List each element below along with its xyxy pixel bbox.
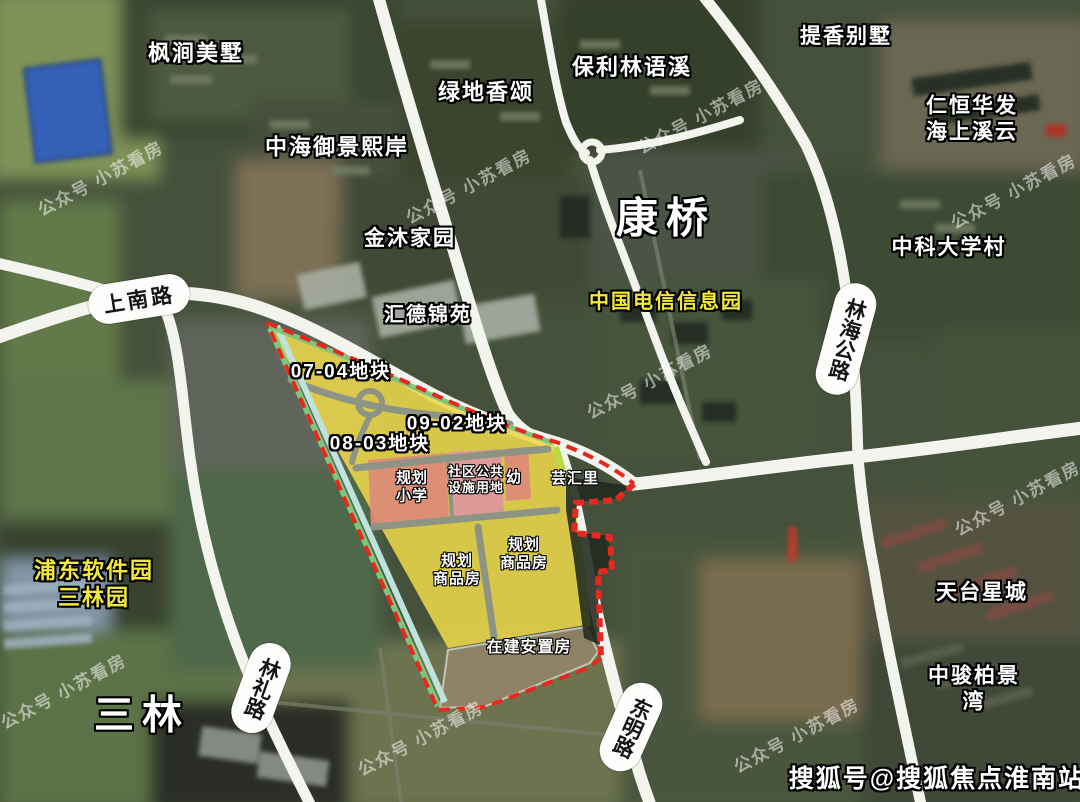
label-plot-07-04: 07-04地块 <box>291 360 392 383</box>
label-huide: 汇德锦苑 <box>384 303 472 327</box>
label-baoli: 保利林语溪 <box>572 55 692 82</box>
label-jinmu: 金沐家园 <box>364 226 456 252</box>
label-commodity-housing-west: 规划 商品房 <box>433 553 481 590</box>
label-district-sanlin: 三林 <box>94 692 190 741</box>
label-zhongjun: 中骏柏景湾 <box>921 663 1027 714</box>
label-plot-08-03: 08-03地块 <box>330 432 431 455</box>
label-community-facility: 社区公共 设施用地 <box>448 464 504 496</box>
label-fengjian-villa: 枫涧美墅 <box>148 41 244 68</box>
source-credit: 搜狐号@搜狐焦点淮南站 <box>789 759 1080 795</box>
map-canvas <box>0 0 1080 802</box>
label-telecom-park: 中国电信信息园 <box>589 290 743 314</box>
label-pudong-software-park: 浦东软件园 三林园 <box>34 558 154 612</box>
label-district-kangqiao: 康桥 <box>616 192 716 243</box>
label-commodity-housing-east: 规划 商品房 <box>500 537 548 574</box>
label-lvdi: 绿地香颂 <box>438 80 534 107</box>
label-kindergarten: 幼 <box>506 469 522 487</box>
label-planned-school: 规划 小学 <box>396 470 428 507</box>
label-tiantai: 天台星城 <box>936 580 1028 606</box>
satellite-map: 枫涧美墅 中海御景熙岸 绿地香颂 保利林语溪 提香别墅 仁恒华发 海上溪云 康桥… <box>0 0 1080 802</box>
label-tixiang: 提香别墅 <box>800 24 892 50</box>
label-zhonghai: 中海御景熙岸 <box>265 135 409 162</box>
label-resettlement-housing: 在建安置房 <box>486 638 571 658</box>
label-yunhuili: 芸汇里 <box>551 470 599 488</box>
label-renheng: 仁恒华发 海上溪云 <box>926 93 1018 144</box>
label-zhongke: 中科大学村 <box>892 235 1007 261</box>
